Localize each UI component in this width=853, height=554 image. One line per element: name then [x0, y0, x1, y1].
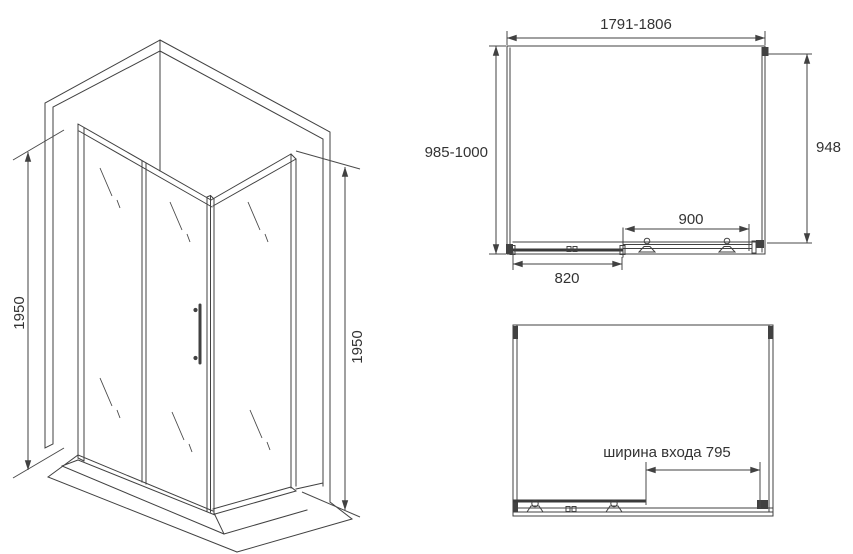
roller-icon — [719, 238, 735, 252]
dimension-overall-width: 1791-1806 — [507, 16, 765, 45]
plan-outline — [506, 46, 769, 254]
technical-drawing-canvas: 1950 1950 — [0, 0, 853, 554]
wall-profile-right-top — [762, 47, 769, 56]
dimension-height-left: 1950 — [11, 130, 64, 478]
overall-width-label: 1791-1806 — [600, 16, 672, 33]
dimension-fixed-panel: 820 — [513, 252, 622, 287]
shower-tray — [48, 455, 352, 552]
corner-bracket — [757, 500, 768, 509]
roller-icon — [639, 238, 655, 252]
front-outline — [513, 325, 773, 516]
dimension-height-right: 1950 — [296, 151, 366, 517]
door-opening-label: 900 — [678, 211, 703, 228]
fixed-panel-label: 820 — [554, 270, 579, 287]
entry-width-label: ширина входа 795 — [603, 444, 731, 461]
glass-shine-marks — [100, 168, 270, 452]
wall-profile-right-bottom — [756, 240, 764, 248]
plan-door-rail — [510, 228, 762, 257]
plan-view: 1791-1806 985-1000 948 900 820 — [425, 16, 841, 287]
front-door-rail — [513, 500, 646, 512]
rail-end-bracket — [752, 241, 756, 253]
dimension-depth: 985-1000 — [425, 46, 506, 254]
front-view: ширина входа 795 — [513, 325, 773, 516]
wall-profile-left — [513, 326, 518, 339]
door-handle — [193, 305, 200, 363]
depth-label: 985-1000 — [425, 144, 488, 161]
walls — [45, 40, 330, 502]
dimension-side-panel: 948 — [767, 54, 841, 243]
side-panel-label: 948 — [816, 139, 841, 156]
isometric-view: 1950 1950 — [11, 40, 366, 552]
wall-profile-right — [768, 326, 773, 339]
panel-clip — [566, 507, 570, 512]
dimension-entry-width: ширина входа 795 — [603, 444, 760, 508]
height-left-label: 1950 — [11, 296, 28, 329]
height-right-label: 1950 — [349, 330, 366, 363]
technical-drawing: 1950 1950 — [0, 0, 853, 554]
shower-frame — [78, 124, 296, 514]
